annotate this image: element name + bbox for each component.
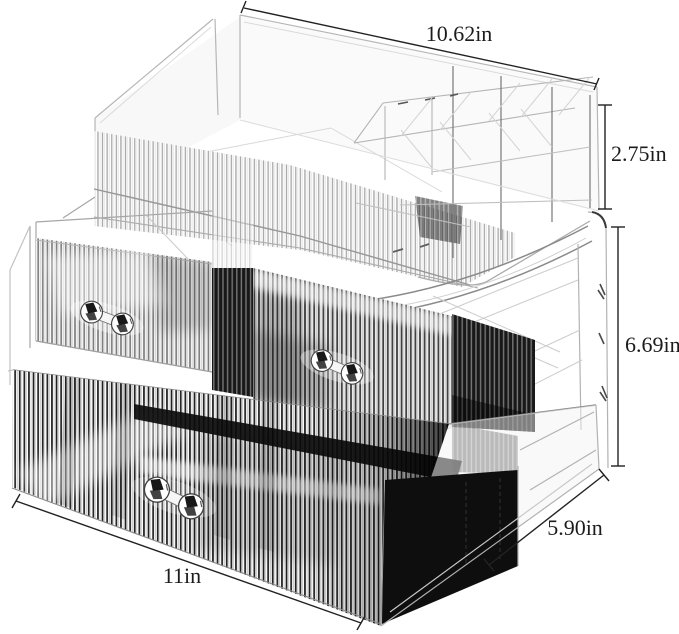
svg-text:10.62in: 10.62in bbox=[426, 21, 493, 46]
svg-text:2.75in: 2.75in bbox=[611, 141, 667, 166]
svg-text:6.69in: 6.69in bbox=[625, 332, 679, 357]
svg-text:5.90in: 5.90in bbox=[547, 515, 603, 540]
svg-text:11in: 11in bbox=[163, 563, 201, 588]
